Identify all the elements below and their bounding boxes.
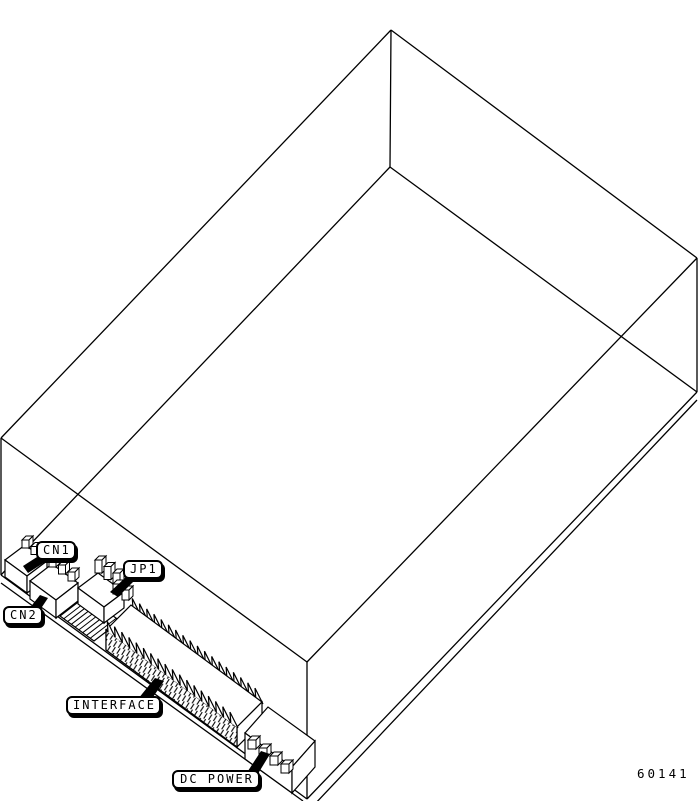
solder-tick-marks — [66, 77, 661, 668]
chassis-vertical-edges — [1, 30, 697, 799]
figure-number: 60141 — [637, 766, 690, 781]
drive-connector-diagram: CN1 CN2 JP1 INTERFACE DC POWER 60141 — [0, 0, 699, 801]
right-rim-band — [307, 392, 697, 801]
cn2-callout: CN2 — [3, 606, 43, 625]
interface-callout: INTERFACE — [66, 696, 161, 715]
chassis-top-edges — [1, 30, 697, 438]
dc-power-callout: DC POWER — [172, 770, 260, 789]
jp1-callout: JP1 — [123, 560, 163, 579]
diagram-canvas — [0, 0, 699, 801]
cn1-callout: CN1 — [36, 541, 76, 560]
chassis-wireframe — [1, 30, 697, 801]
